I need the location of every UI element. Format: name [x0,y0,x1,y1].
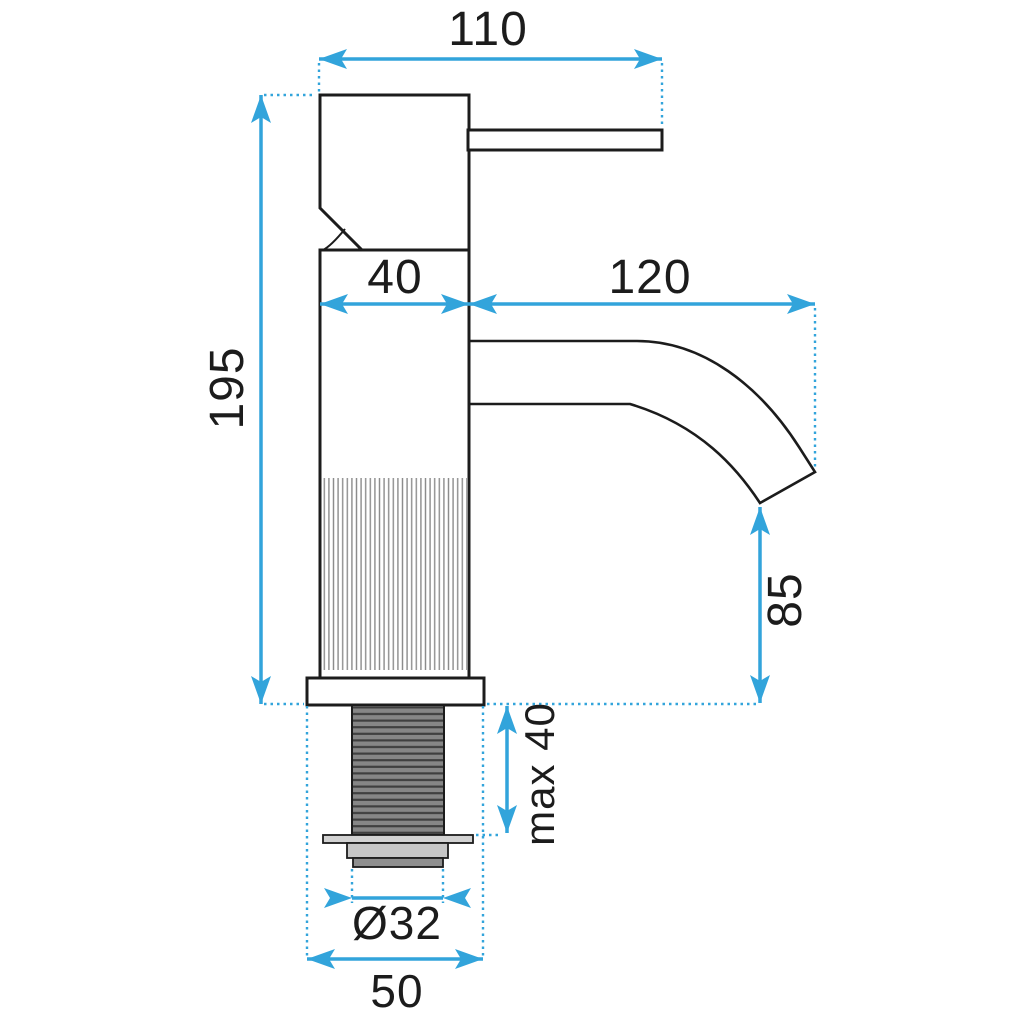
handle-chamfer-arc [323,229,345,250]
arrow-left-icon [443,888,471,908]
mounting-nut [347,843,448,858]
dim-label-base-width: 50 [370,968,423,1014]
washer [323,835,473,843]
dim-label-spout-outlet-height: 85 [762,572,810,627]
lever-arm [468,130,662,150]
threaded-rod [352,705,444,835]
dim-label-total-height: 195 [204,346,252,429]
dimension-max-mounting-thickness [497,706,517,833]
body-knurl-hatch [322,478,467,670]
dim-label-thread-diameter: Ø32 [352,900,442,946]
dim-label-body-width: 40 [367,254,422,302]
dim-label-max-mounting-thickness: max 40 [519,702,561,846]
dimension-total-height [251,95,271,704]
drawing-canvas [0,0,1024,1024]
faucet-dimension-drawing: 110 40 120 195 85 max 40 Ø32 50 [0,0,1024,1024]
dim-label-lever-length: 110 [448,6,528,54]
dim-label-spout-reach: 120 [608,254,691,302]
arrow-right-icon [324,888,352,908]
base-plate [307,678,484,705]
rod-end [353,858,443,867]
spout [469,341,815,503]
handle-cap [320,95,469,250]
